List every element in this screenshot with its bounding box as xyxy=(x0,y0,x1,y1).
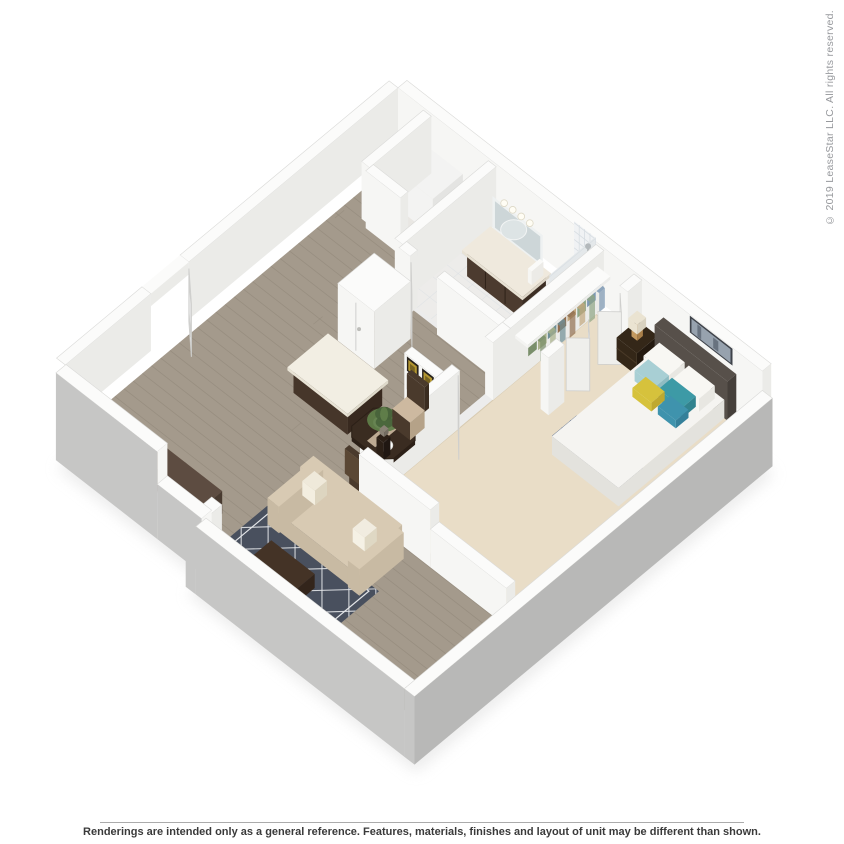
floorplan-3d-render xyxy=(0,0,844,844)
bifold-panel xyxy=(566,338,590,391)
wall-bedroom-a-sw-face xyxy=(485,337,493,400)
copyright-watermark: © 2019 LeaseStar LLC. All rights reserve… xyxy=(824,10,836,226)
plant-leaf xyxy=(380,407,388,421)
mirror-reflection xyxy=(501,220,527,240)
exterior-wall-se-sw-face xyxy=(404,689,414,765)
dining-chair-back-se-face xyxy=(425,384,429,413)
sconce-bulb xyxy=(526,220,533,227)
footer-divider xyxy=(100,822,744,823)
disclaimer-text: Renderings are intended only as a genera… xyxy=(0,826,844,838)
floorplan-page: © 2019 LeaseStar LLC. All rights reserve… xyxy=(0,0,844,844)
bathroom-door xyxy=(411,262,412,346)
wall-closet-right-b xyxy=(541,339,565,416)
bedroom-door xyxy=(458,375,459,460)
wall-closet-right-b-sw-face xyxy=(541,352,549,415)
sconce-bulb xyxy=(518,213,525,220)
pantry-knob xyxy=(357,327,361,331)
sconce-bulb xyxy=(501,200,508,207)
sconce-bulb xyxy=(509,206,516,213)
wall-bedroom-a xyxy=(485,322,510,400)
